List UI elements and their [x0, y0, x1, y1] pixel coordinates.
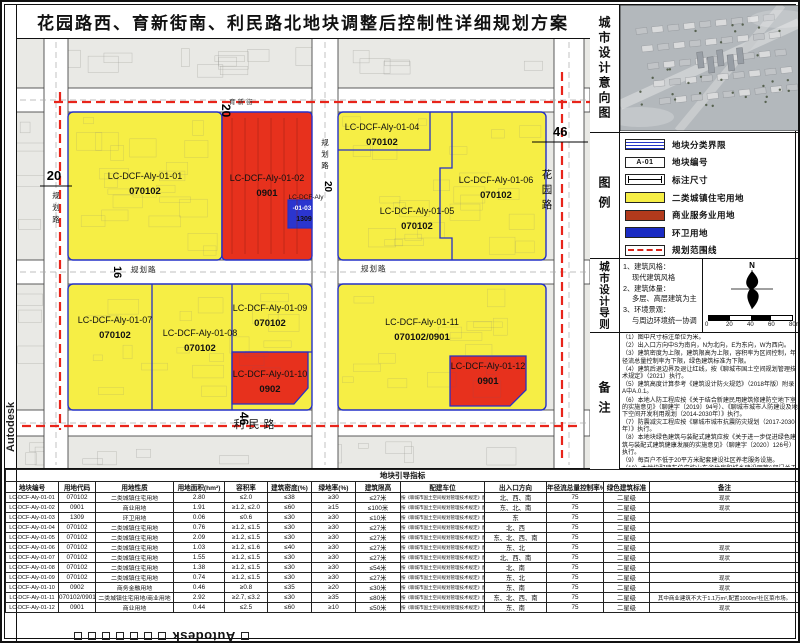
table-cell: ≥30: [312, 573, 356, 583]
table-cell: 二星级: [604, 543, 650, 553]
table-cell: 1.38: [174, 563, 225, 573]
table-row: LC-DCF-Aly-01-05070102二类城镇住宅用地2.09≥1.2, …: [6, 533, 800, 543]
scale-tick-label: 80m: [789, 322, 800, 328]
glyph-box: [241, 632, 249, 640]
col-header: 建筑限高: [356, 482, 401, 493]
sanitation-swatch: [625, 227, 665, 238]
table-cell: 二类城镇住宅用地: [96, 563, 174, 573]
table-cell: LC-DCF-Aly-01-11: [6, 593, 59, 603]
table-cell: ≥30: [312, 543, 356, 553]
legend-item-label: 二类城镇住宅用地: [672, 192, 744, 204]
note-line: （3）建筑密度为上限，建筑限高为上限，容积率为区间控制，年径流总量控制率为下限，…: [622, 350, 798, 364]
table-cell: LC-DCF-Aly-01-07: [6, 553, 59, 563]
north-label: N: [749, 261, 755, 270]
aerial-render-image: [620, 5, 799, 131]
table-cell: 070102: [59, 543, 96, 553]
table-cell: 070102: [59, 493, 96, 503]
table-cell: 二星级: [604, 513, 650, 523]
plot-label: LC-DCF-Aly-01-02: [230, 173, 305, 183]
note-line: （10）本地块配建车位应按山东省住房和城乡建设厅等6部门关于推动城市停车设施发展…: [622, 465, 798, 467]
table-cell: 现状: [650, 553, 800, 563]
table-cell: 070102: [59, 523, 96, 533]
table-cell: 070102/0901: [59, 593, 96, 603]
plot-label: LC-DCF-Aly-01-01: [108, 171, 183, 181]
design-guidelines: 1、建筑风格：现代建筑风格2、建筑体量：多层、高层建筑为主3、环境景观：与周边环…: [623, 262, 702, 327]
table-cell: ≥15: [312, 503, 356, 513]
guideline-body: 多层、高层建筑为主: [623, 294, 702, 305]
table-cell: 按《聊城市国土空间规划管理技术规定》配建: [401, 513, 485, 523]
section-label-design-intent: 城市设计意向图: [590, 5, 619, 132]
table-cell: ≤27米: [356, 573, 401, 583]
planning-scope-swatch: [625, 245, 665, 256]
legend-item-label: 商业服务业用地: [672, 209, 735, 221]
col-header: 地块编号: [6, 482, 59, 493]
table-cell: 75: [547, 533, 604, 543]
note-line: （5）建筑高度计算参考《建筑设计防火规范》（2018年版）附录A中A.0.1。: [622, 381, 798, 395]
commercial-swatch: [625, 210, 665, 221]
col-header: 出入口方向: [485, 482, 547, 493]
plot-code: 070102: [99, 330, 131, 341]
road-label: 路: [52, 214, 60, 224]
table-cell: 二类城镇住宅用地: [96, 553, 174, 563]
col-header: 建筑密度(%): [268, 482, 312, 493]
plot-LC-DCF-Aly-01-02: [222, 112, 312, 260]
table-cell: [650, 533, 800, 543]
table-cell: 现状: [650, 583, 800, 593]
table-cell: ≥30: [312, 493, 356, 503]
table-cell: 按《聊城市国土空间规划管理技术规定》配建: [401, 503, 485, 513]
table-cell: LC-DCF-Aly-01-05: [6, 533, 59, 543]
autodesk-watermark-bottom: Autodesk: [74, 629, 249, 643]
table-cell: ≤10米: [356, 513, 401, 523]
road-label: 规: [321, 137, 329, 147]
table-cell: ≤35: [268, 583, 312, 593]
table-cell: 1.55: [174, 553, 225, 563]
table-cell: ≥30: [312, 533, 356, 543]
plot-label: LC-DCF-Aly: [288, 194, 324, 201]
col-header: 绿地率(%): [312, 482, 356, 493]
table-cell: 2.09: [174, 533, 225, 543]
plot-code: 0902: [259, 384, 280, 395]
plot-label: LC-DCF-Aly-01-10: [233, 369, 308, 379]
table-cell: 二星级: [604, 593, 650, 603]
table-cell: 现状: [650, 503, 800, 513]
legend-item-label: 地块分类界限: [672, 139, 726, 151]
dimension-label: 46: [553, 124, 567, 139]
note-line: （7）防震减灾工程应按《聊城市城市抗震防灾规划（2017-2030年）》执行。: [622, 419, 798, 433]
plot-label: LC-DCF-Aly-01-11: [385, 317, 459, 327]
plot-code: 070102: [401, 221, 433, 232]
guideline-head: 3、环境景观：: [623, 305, 702, 316]
road-label: 规划路: [131, 264, 157, 274]
legend-item: 二类城镇住宅用地: [625, 189, 799, 207]
dimension-label: 46: [237, 412, 251, 426]
table-cell: 070102: [59, 553, 96, 563]
table-cell: LC-DCF-Aly-01-04: [6, 523, 59, 533]
plot-code: 0901: [256, 188, 278, 199]
table-cell: 二星级: [604, 533, 650, 543]
plot-code: 070102: [184, 343, 216, 354]
table-cell: 二星级: [604, 493, 650, 503]
road-label: 规划路: [361, 263, 387, 273]
table-cell: 北、南: [485, 563, 547, 573]
legend-item-label: 环卫用地: [672, 227, 708, 239]
table-cell: 现状: [650, 543, 800, 553]
table-cell: 北、西、南: [485, 553, 547, 563]
section-label-legend: 图例: [590, 133, 619, 258]
table-cell: 0901: [59, 503, 96, 513]
table-cell: ≤54米: [356, 563, 401, 573]
guideline-head: 1、建筑风格：: [623, 262, 702, 273]
table-cell: ≤100米: [356, 503, 401, 513]
legend-item: 标注尺寸: [625, 171, 799, 189]
table-cell: 75: [547, 493, 604, 503]
scale-tick-label: 60: [768, 322, 775, 328]
table-cell: 0.76: [174, 523, 225, 533]
road-label: 园: [542, 184, 553, 196]
table-cell: 东、北、南: [485, 503, 547, 513]
table-cell: ≤30: [268, 593, 312, 603]
road-label: 花: [542, 168, 553, 181]
table-cell: ≤27米: [356, 493, 401, 503]
table-cell: LC-DCF-Aly-01-12: [6, 603, 59, 613]
glyph-box: [88, 632, 96, 640]
table-cell: 0.06: [174, 513, 225, 523]
table-cell: [650, 513, 800, 523]
table-cell: 1.91: [174, 503, 225, 513]
table-cell: 二类城镇住宅用地: [96, 493, 174, 503]
table-cell: ≤30: [268, 513, 312, 523]
table-cell: ≥1.2, ≤1.6: [225, 543, 268, 553]
table-cell: 东、北、西、南: [485, 593, 547, 603]
scale-bar: [708, 315, 793, 321]
plot-code: 0901: [477, 376, 499, 387]
note-line: （8）本地块绿色建筑与装配式建筑应按《关于进一步促进绿色建筑与装配式建筑健康发展…: [622, 434, 798, 456]
plot-boundary-swatch: [625, 139, 665, 150]
road-label: 划: [321, 149, 329, 159]
table-row: LC-DCF-Aly-01-01070102二类城镇住宅用地2.80≤2.0≤3…: [6, 493, 800, 503]
table-cell: ≥30: [312, 513, 356, 523]
table-cell: ≥1.2, ≤1.5: [225, 533, 268, 543]
table-cell: ≥1.2, ≤1.5: [225, 523, 268, 533]
table-cell: 按《聊城市国土空间规划管理技术规定》配建: [401, 493, 485, 503]
table-cell: 东、南: [485, 583, 547, 593]
table-cell: 二类城镇住宅用地: [96, 573, 174, 583]
table-cell: 75: [547, 603, 604, 613]
table-cell: 070102: [59, 573, 96, 583]
table-cell: ≤80米: [356, 593, 401, 603]
table-cell: 按《聊城市国土空间规划管理技术规定》配建: [401, 553, 485, 563]
scale-tick-label: 20: [726, 322, 733, 328]
table-cell: 按《聊城市国土空间规划管理技术规定》配建: [401, 573, 485, 583]
table-header-row: 地块编号用地代码用地性质用地面积(hm²)容积率建筑密度(%)绿地率(%)建筑限…: [6, 482, 800, 493]
table-cell: 0.74: [174, 573, 225, 583]
autodesk-flipped-text: Autodesk: [172, 629, 235, 643]
table-cell: 现状: [650, 573, 800, 583]
table-cell: 二星级: [604, 573, 650, 583]
plot-label: -01-03: [293, 205, 312, 212]
table-title: 地块引导指标: [6, 470, 800, 482]
page-title: 花园路西、育新街南、利民路北地块调整后控制性详细规划方案: [16, 5, 590, 38]
scale-tick-label: 40: [747, 322, 754, 328]
table-cell: ≤30: [268, 523, 312, 533]
table-cell: ≤27米: [356, 523, 401, 533]
indicator-table-wrap: 地块引导指标地块编号用地代码用地性质用地面积(hm²)容积率建筑密度(%)绿地率…: [5, 469, 799, 629]
col-header: 年径流总量控制率%: [547, 482, 604, 493]
table-cell: 二星级: [604, 553, 650, 563]
table-cell: 0.44: [174, 603, 225, 613]
table-cell: ≤40: [268, 543, 312, 553]
plot-label: LC-DCF-Aly-01-07: [78, 315, 153, 325]
glyph-box: [130, 632, 138, 640]
table-row: LC-DCF-Aly-01-06070102二类城镇住宅用地1.03≥1.2, …: [6, 543, 800, 553]
note-line: （4）建筑后退边界及退让红线，按《聊城市国土空间规划管理技术规定》（2021）执…: [622, 366, 798, 380]
legend-item: 地块分类界限: [625, 136, 799, 154]
table-cell: 东、北: [485, 543, 547, 553]
table-cell: ≥30: [312, 563, 356, 573]
table-cell: ≥10: [312, 603, 356, 613]
table-row: LC-DCF-Aly-01-11070102/0901二类城镇住宅用地/商业用地…: [6, 593, 800, 603]
dimension-label: 20: [47, 168, 61, 183]
table-cell: ≥1.2, ≤2.0: [225, 503, 268, 513]
plot-code: 070102/0901: [394, 332, 450, 343]
table-cell: 现状: [650, 493, 800, 503]
table-cell: ≥20: [312, 583, 356, 593]
guideline-body: 与周边环境统一协调: [623, 316, 702, 327]
table-cell: LC-DCF-Aly-01-06: [6, 543, 59, 553]
note-line: （6）本地人防工程应按《关于结合新建民用建筑修建防空地下室的实施意见》（聊建字〔…: [622, 397, 798, 419]
plot-label: LC-DCF-Aly-01-08: [163, 328, 238, 338]
table-cell: 按《聊城市国土空间规划管理技术规定》配建: [401, 593, 485, 603]
guideline-head: 2、建筑体量：: [623, 284, 702, 295]
table-cell: ≤30: [268, 533, 312, 543]
legend-item: 环卫用地: [625, 224, 799, 242]
legend-item-label: 标注尺寸: [672, 174, 708, 186]
plot-indicator-table: 地块引导指标地块编号用地代码用地性质用地面积(hm²)容积率建筑密度(%)绿地率…: [5, 469, 799, 613]
plot-label: LC-DCF-Aly-01-04: [345, 122, 420, 132]
glyph-box: [144, 632, 152, 640]
glyph-box: [116, 632, 124, 640]
table-cell: 商业用地: [96, 503, 174, 513]
note-line: （1）图中尺寸标注单位为米。: [622, 334, 798, 341]
section-label-notes: 备注: [590, 333, 619, 469]
table-cell: 1309: [59, 513, 96, 523]
col-header: 配建车位: [401, 482, 485, 493]
plot-label: LC-DCF-Aly-01-12: [451, 361, 526, 371]
table-cell: 0901: [59, 603, 96, 613]
plot-code: 070102: [480, 190, 512, 201]
legend-item-label: 规划范围线: [672, 244, 717, 256]
title-divider: [16, 38, 590, 39]
table-cell: ≤30米: [356, 583, 401, 593]
plot-label: LC-DCF-Aly-01-09: [233, 303, 308, 313]
table-cell: ≥30: [312, 553, 356, 563]
table-cell: 二类城镇住宅用地/商业用地: [96, 593, 174, 603]
legend-item: 商业服务业用地: [625, 206, 799, 224]
residential-swatch: [625, 192, 665, 203]
legend-list: 地块分类界限A-01地块编号标注尺寸二类城镇住宅用地商业服务业用地环卫用地规划范…: [620, 134, 799, 258]
section-label-guidelines: 城市设计导则: [590, 259, 619, 332]
col-header: 用地代码: [59, 482, 96, 493]
plan-sheet: 花园路西、育新街南、利民路北地块调整后控制性详细规划方案 LC-DCF-Aly-…: [0, 0, 800, 643]
table-cell: 二星级: [604, 503, 650, 513]
table-cell: 其中商业建筑不大于1.1万m²,配置1000m²社区菜市场。: [650, 593, 800, 603]
table-cell: ≤30: [268, 573, 312, 583]
dimension-label: 20: [219, 104, 233, 118]
table-cell: 北、西: [485, 523, 547, 533]
table-cell: ≥30: [312, 523, 356, 533]
glyph-box: [158, 632, 166, 640]
legend-item-label: 地块编号: [672, 156, 708, 168]
note-line: （2）出入口方向中S为南向，N为北向，E为东向，W为西向。: [622, 342, 798, 349]
table-cell: ≤0.6: [225, 513, 268, 523]
table-cell: 070102: [59, 533, 96, 543]
table-cell: ≥2.7, ≤3.2: [225, 593, 268, 603]
table-cell: ≤60: [268, 503, 312, 513]
dimension-swatch: [625, 174, 665, 185]
table-cell: ≤30: [268, 553, 312, 563]
table-cell: 按《聊城市国土空间规划管理技术规定》配建: [401, 543, 485, 553]
plot-code: 070102: [254, 318, 286, 329]
table-cell: 二星级: [604, 563, 650, 573]
plot-code-swatch: A-01: [625, 157, 665, 168]
plot-label: LC-DCF-Aly-01-05: [380, 206, 455, 216]
guideline-body: 现代建筑风格: [623, 273, 702, 284]
legend-item: 规划范围线: [625, 242, 799, 260]
table-cell: 75: [547, 513, 604, 523]
table-cell: 75: [547, 503, 604, 513]
table-cell: 东、南: [485, 603, 547, 613]
table-cell: 75: [547, 523, 604, 533]
table-cell: 2.92: [174, 593, 225, 603]
col-header: 用地面积(hm²): [174, 482, 225, 493]
table-cell: 1.03: [174, 543, 225, 553]
table-cell: 北、西、南: [485, 493, 547, 503]
table-cell: 二类城镇住宅用地: [96, 533, 174, 543]
table-cell: 按《聊城市国土空间规划管理技术规定》配建: [401, 563, 485, 573]
table-cell: [650, 563, 800, 573]
dimension-label: 20: [322, 181, 333, 193]
table-cell: ≥1.2, ≤1.5: [225, 553, 268, 563]
plot-code: 1309: [296, 216, 312, 223]
table-cell: ≤2.0: [225, 493, 268, 503]
note-line: （9）每百户不低于20平方米配套建设社区养老服务设施。: [622, 457, 798, 464]
section-line-1: [590, 132, 799, 133]
road-label: 路: [321, 160, 329, 170]
table-cell: 0.46: [174, 583, 225, 593]
table-cell: 二星级: [604, 523, 650, 533]
road-label: 路: [542, 198, 553, 211]
table-cell: ≤2.5: [225, 603, 268, 613]
table-cell: 75: [547, 593, 604, 603]
table-cell: ≤27米: [356, 543, 401, 553]
table-title-row: 地块引导指标: [6, 470, 800, 482]
road-label: 规: [52, 190, 60, 200]
table-cell: LC-DCF-Aly-01-09: [6, 573, 59, 583]
table-cell: ≥1.2, ≤1.5: [225, 563, 268, 573]
table-cell: 二类城镇住宅用地: [96, 543, 174, 553]
table-cell: 二类城镇住宅用地: [96, 523, 174, 533]
table-cell: 现状: [650, 603, 800, 613]
glyph-box: [102, 632, 110, 640]
table-cell: ≤38: [268, 493, 312, 503]
table-row: LC-DCF-Aly-01-09070102二类城镇住宅用地0.74≥1.2, …: [6, 573, 800, 583]
table-row: LC-DCF-Aly-01-07070102二类城镇住宅用地1.55≥1.2, …: [6, 553, 800, 563]
table-cell: ≤50米: [356, 603, 401, 613]
table-cell: 二星级: [604, 603, 650, 613]
table-row: LC-DCF-Aly-01-08070102二类城镇住宅用地1.38≥1.2, …: [6, 563, 800, 573]
table-cell: 按《聊城市国土空间规划管理技术规定》配建: [401, 583, 485, 593]
table-cell: LC-DCF-Aly-01-03: [6, 513, 59, 523]
col-header: 用地性质: [96, 482, 174, 493]
table-row: LC-DCF-Aly-01-020901商业用地1.91≥1.2, ≤2.0≤6…: [6, 503, 800, 513]
table-cell: 按《聊城市国土空间规划管理技术规定》配建: [401, 603, 485, 613]
plot-label: LC-DCF-Aly-01-06: [459, 175, 534, 185]
table-row: LC-DCF-Aly-01-120901商业用地0.44≤2.5≤60≥10≤5…: [6, 603, 800, 613]
dimension-label: 16: [111, 266, 123, 278]
table-row: LC-DCF-Aly-01-031309环卫用地0.06≤0.6≤30≥30≤1…: [6, 513, 800, 523]
table-cell: ≤27米: [356, 553, 401, 563]
table-cell: 东、北、西、南: [485, 533, 547, 543]
zoning-map: LC-DCF-Aly-01-01070102LC-DCF-Aly-01-0209…: [16, 38, 590, 469]
table-cell: ≥1.2, ≤1.5: [225, 573, 268, 583]
table-cell: 75: [547, 583, 604, 593]
table-cell: ≥35: [312, 593, 356, 603]
col-header: 备注: [650, 482, 800, 493]
table-cell: 75: [547, 563, 604, 573]
glyph-box: [74, 632, 82, 640]
table-cell: LC-DCF-Aly-01-08: [6, 563, 59, 573]
table-cell: 东、北: [485, 573, 547, 583]
table-cell: 环卫用地: [96, 513, 174, 523]
table-cell: ≤30: [268, 563, 312, 573]
table-cell: ≤27米: [356, 533, 401, 543]
table-cell: 商业用地: [96, 603, 174, 613]
table-cell: ≤60: [268, 603, 312, 613]
notes-list: （1）图中尺寸标注单位为米。（2）出入口方向中S为南向，N为北向，E为东向，W为…: [622, 334, 798, 467]
col-header: 容积率: [225, 482, 268, 493]
table-row: LC-DCF-Aly-01-04070102二类城镇住宅用地0.76≥1.2, …: [6, 523, 800, 533]
table-cell: 商务金融用地: [96, 583, 174, 593]
autodesk-watermark-left: Autodesk: [5, 402, 17, 452]
section-line-3: [590, 332, 799, 333]
table-cell: ≥0.8: [225, 583, 268, 593]
table-cell: LC-DCF-Aly-01-10: [6, 583, 59, 593]
north-arrow-icon: N: [703, 259, 800, 313]
legend-item: A-01地块编号: [625, 154, 799, 172]
table-cell: LC-DCF-Aly-01-01: [6, 493, 59, 503]
table-row: LC-DCF-Aly-01-100902商务金融用地0.46≥0.8≤35≥20…: [6, 583, 800, 593]
plot-code: 070102: [129, 186, 161, 197]
compass-box: N 020406080m: [702, 258, 799, 332]
table-cell: 75: [547, 573, 604, 583]
scale-tick-label: 0: [705, 322, 708, 328]
plot-code: 070102: [366, 137, 398, 148]
table-cell: LC-DCF-Aly-01-02: [6, 503, 59, 513]
table-cell: 东: [485, 513, 547, 523]
table-cell: 0902: [59, 583, 96, 593]
table-cell: 按《聊城市国土空间规划管理技术规定》配建: [401, 523, 485, 533]
table-cell: 75: [547, 543, 604, 553]
table-cell: 按《聊城市国土空间规划管理技术规定》配建: [401, 533, 485, 543]
road-label: 划: [52, 202, 60, 212]
table-cell: 070102: [59, 563, 96, 573]
col-header: 绿色建筑标准: [604, 482, 650, 493]
table-cell: [650, 523, 800, 533]
table-cell: 2.80: [174, 493, 225, 503]
table-cell: 75: [547, 553, 604, 563]
table-cell: 二星级: [604, 583, 650, 593]
